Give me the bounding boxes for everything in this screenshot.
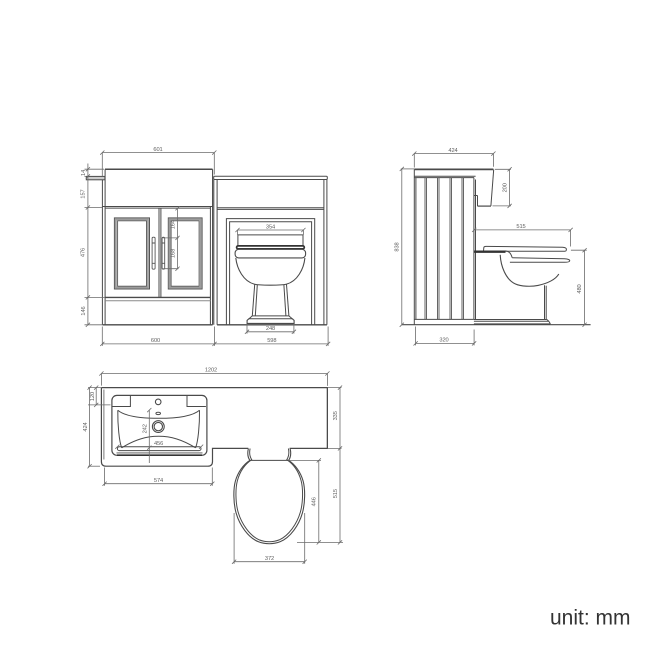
svg-text:424: 424 — [83, 422, 89, 431]
svg-text:424: 424 — [448, 148, 457, 154]
svg-text:515: 515 — [333, 489, 339, 498]
svg-text:598: 598 — [267, 338, 276, 344]
svg-text:1202: 1202 — [205, 368, 217, 374]
svg-text:335: 335 — [333, 411, 339, 420]
svg-text:14: 14 — [81, 170, 87, 176]
svg-text:838: 838 — [395, 242, 401, 251]
svg-text:476: 476 — [81, 248, 87, 257]
svg-text:354: 354 — [266, 224, 275, 230]
svg-text:unit: mm: unit: mm — [550, 607, 631, 630]
svg-text:446: 446 — [311, 497, 317, 506]
svg-text:372: 372 — [265, 556, 274, 562]
svg-text:248: 248 — [266, 326, 275, 332]
svg-text:242: 242 — [142, 424, 148, 433]
svg-text:515: 515 — [516, 224, 525, 230]
svg-text:146: 146 — [81, 306, 87, 315]
svg-text:600: 600 — [151, 338, 160, 344]
svg-text:157: 157 — [81, 189, 87, 198]
svg-text:480: 480 — [577, 284, 583, 293]
svg-text:601: 601 — [153, 147, 162, 153]
svg-text:574: 574 — [154, 478, 163, 484]
svg-text:320: 320 — [439, 338, 448, 344]
svg-text:164: 164 — [171, 220, 177, 229]
svg-text:200: 200 — [502, 183, 508, 192]
svg-text:168: 168 — [171, 249, 177, 258]
svg-text:456: 456 — [154, 441, 163, 447]
svg-text:120: 120 — [90, 392, 96, 401]
